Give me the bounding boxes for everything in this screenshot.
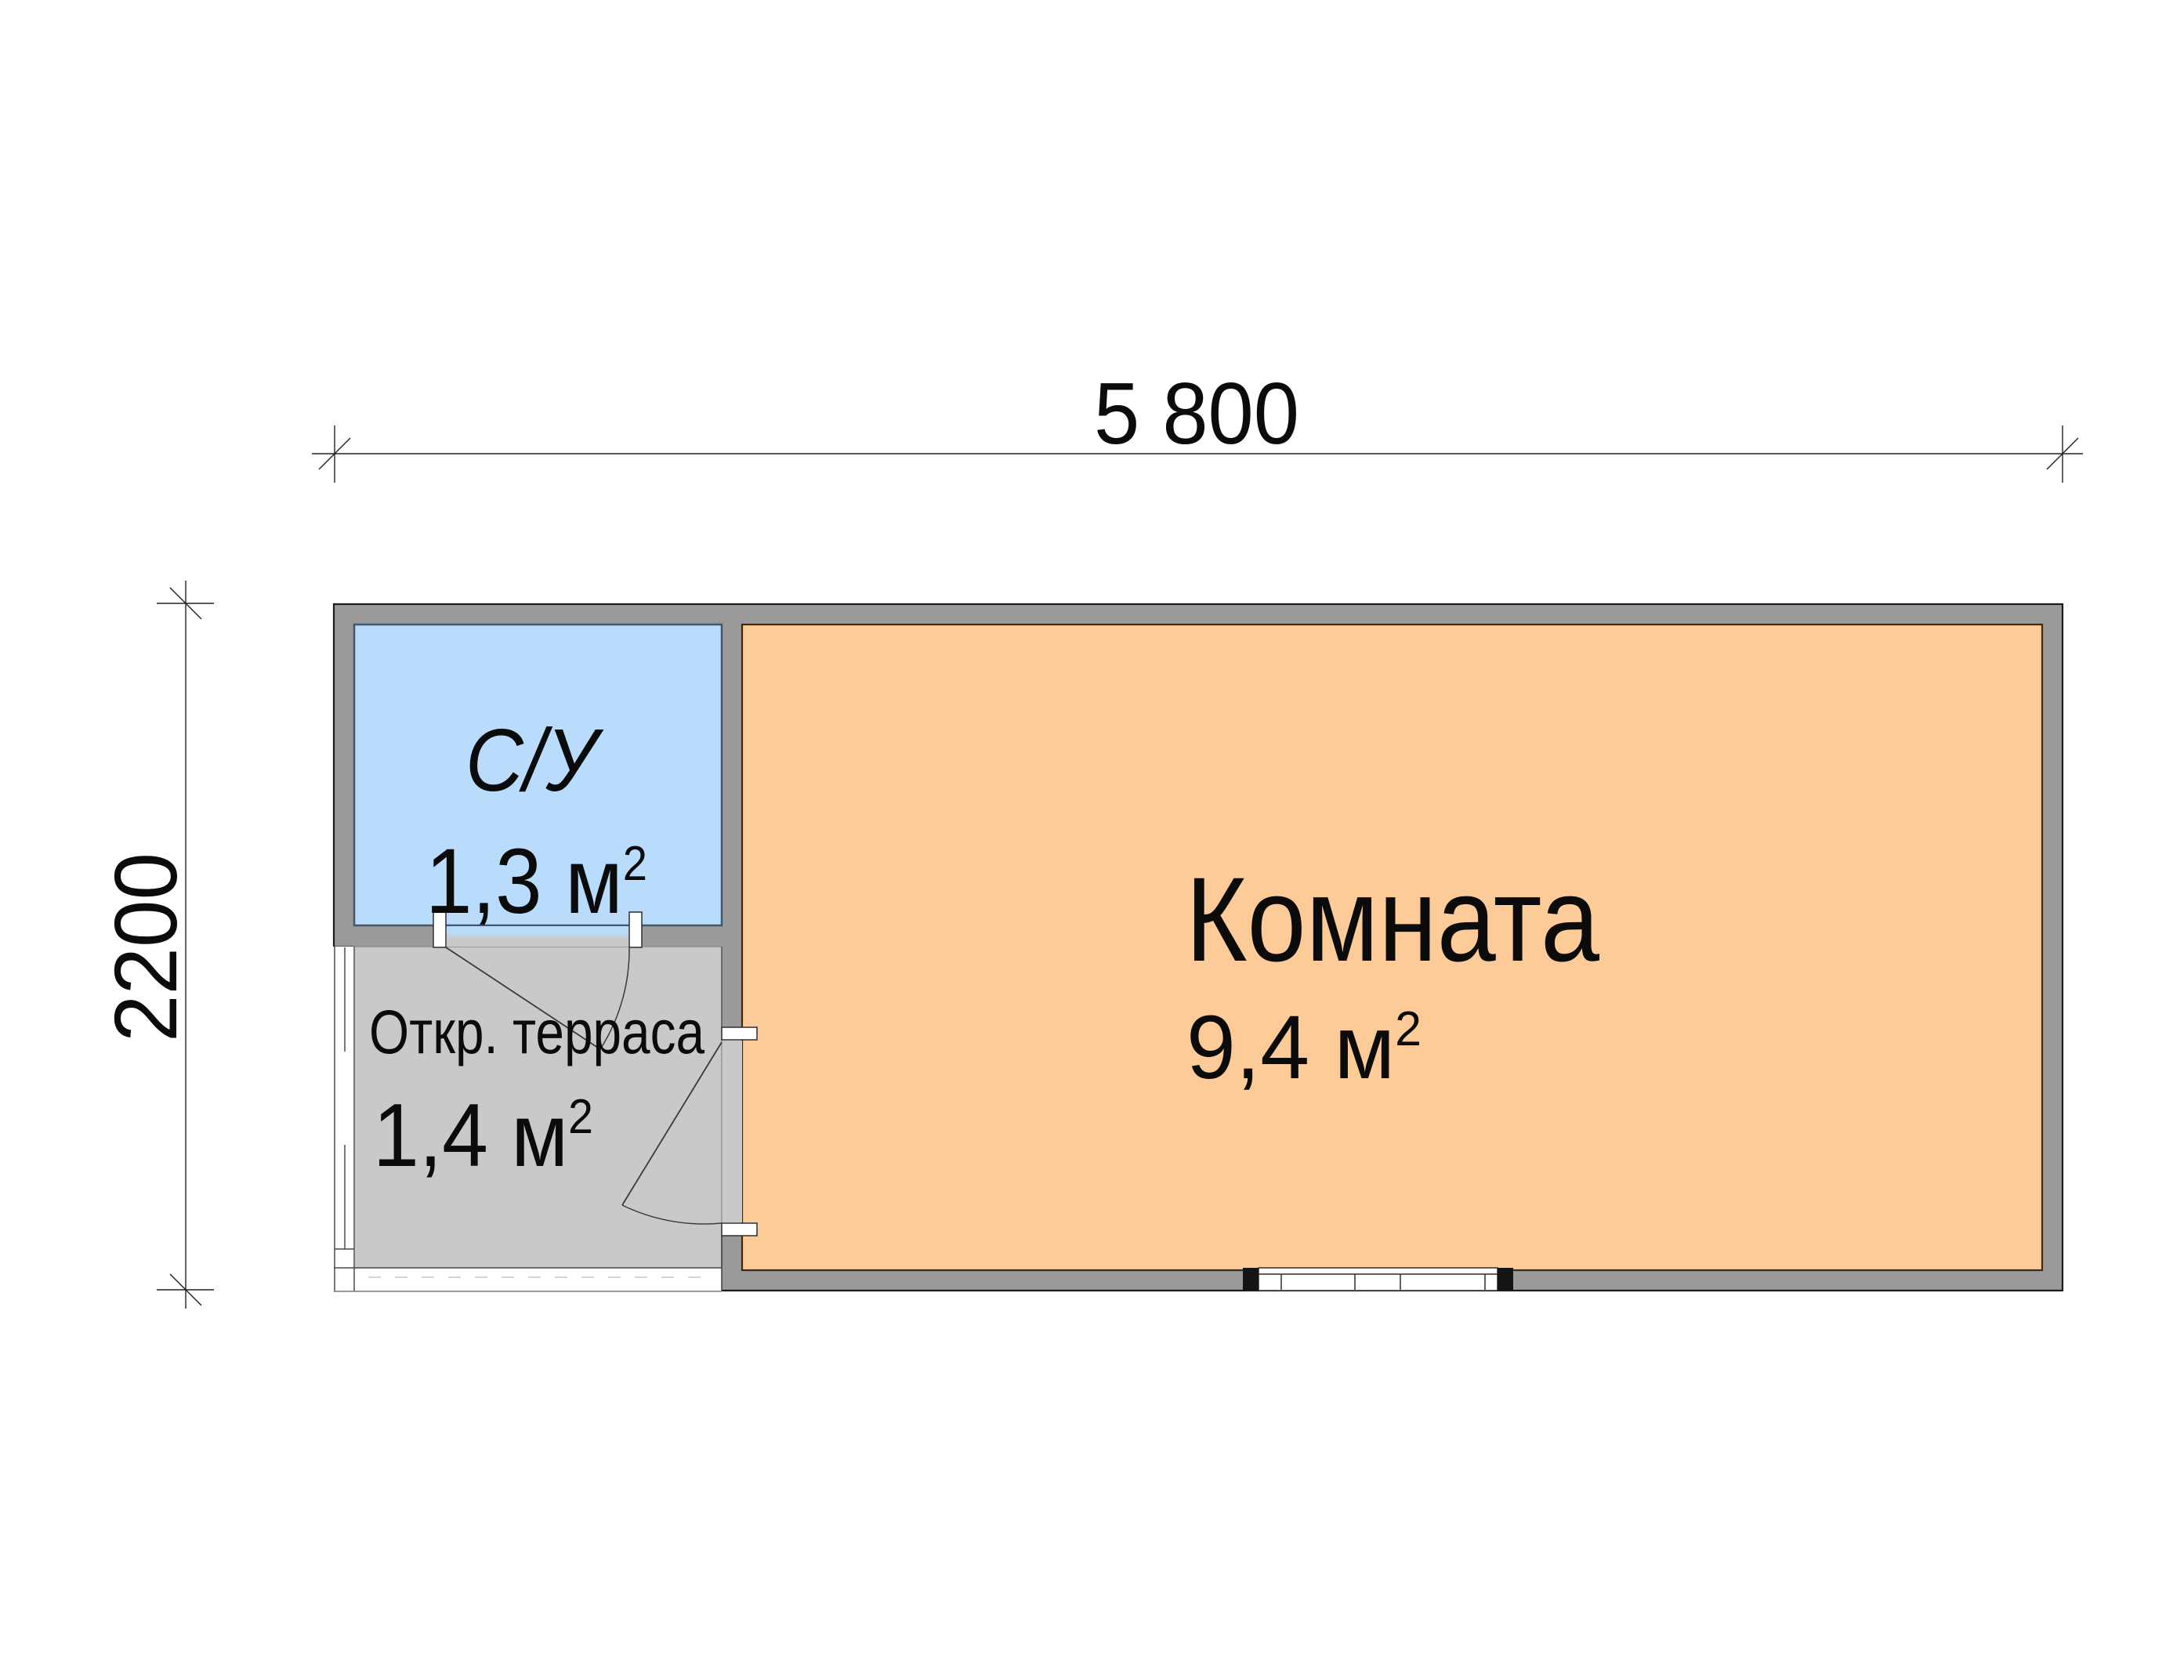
svg-text:Комната: Комната	[1186, 853, 1600, 987]
svg-text:1,3 м2: 1,3 м2	[426, 830, 647, 933]
svg-text:9,4 м2: 9,4 м2	[1186, 997, 1422, 1098]
svg-text:1,4 м2: 1,4 м2	[373, 1086, 593, 1186]
svg-text:2200: 2200	[96, 853, 195, 1042]
svg-text:Откр. терраса: Откр. терраса	[369, 997, 704, 1066]
svg-text:5 800: 5 800	[1094, 365, 1299, 462]
svg-text:С/У: С/У	[465, 711, 604, 809]
